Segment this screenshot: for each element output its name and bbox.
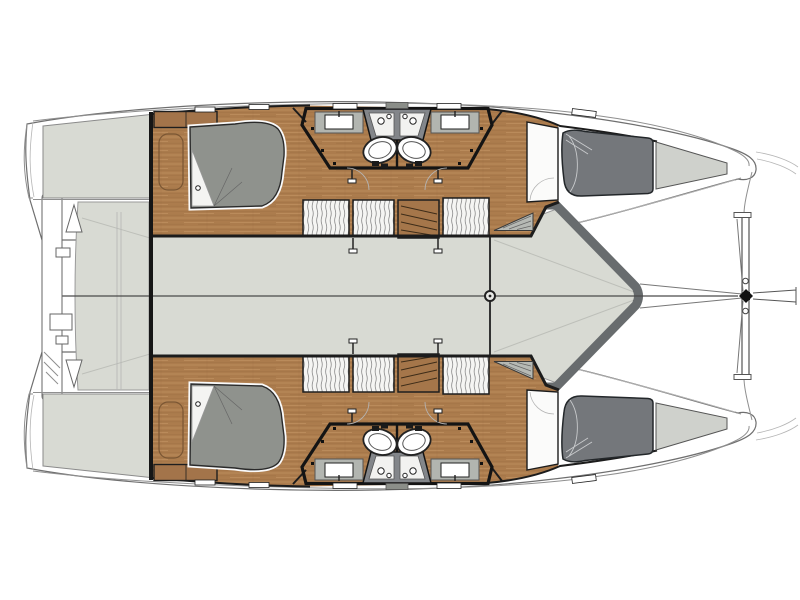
floorplan-svg: [0, 0, 800, 600]
mast-foot-center: [489, 295, 492, 298]
hull-window-slot-3: [195, 107, 215, 112]
beam-fitting-lower: [743, 308, 749, 314]
shower-drain-right: [410, 118, 416, 124]
sink-right: [441, 115, 469, 129]
transom-locker: [50, 314, 72, 330]
beam-fitting-upper: [743, 278, 749, 284]
cleat-lower: [56, 336, 68, 344]
bowsprit-fitting-base: [743, 292, 750, 300]
wardrobe-locker-2: [353, 200, 394, 236]
shower-control-left: [387, 114, 391, 118]
forward-cabin-floor: [527, 122, 558, 202]
shower-drain-left: [378, 118, 384, 124]
boat-floorplan: [0, 0, 800, 600]
toilet-base-right: [415, 161, 422, 166]
crossbeam-cap-port: [734, 213, 751, 218]
shower-hatch: [386, 103, 408, 109]
companionway-stairs: [398, 200, 439, 238]
crossbeam-cap-starboard: [734, 375, 751, 380]
sink-left: [325, 115, 353, 129]
toilet-base-right-2: [406, 164, 413, 169]
transom-platform: [43, 115, 150, 199]
toilet-base-left-2: [381, 164, 388, 169]
hull-window-slot-1: [333, 104, 357, 110]
main-bulkhead-wall: [149, 112, 153, 480]
cleat-upper: [56, 248, 70, 257]
wardrobe-locker-3: [443, 198, 489, 236]
hull-window-slot-4: [249, 105, 269, 110]
reading-light: [196, 186, 201, 191]
hull-window-slot-2: [437, 104, 461, 110]
shower-control-right: [403, 114, 407, 118]
wardrobe-locker-1: [303, 200, 349, 236]
toilet-base-left: [372, 161, 379, 166]
